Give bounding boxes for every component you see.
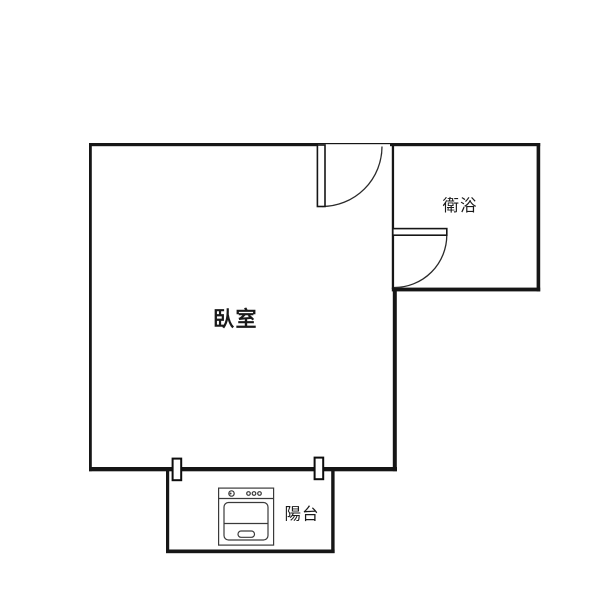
balcony-door-post-right	[315, 458, 324, 480]
bathroom-door-leaf	[393, 229, 447, 236]
floor-plan: 臥室 衛浴 陽台	[0, 0, 600, 600]
wall-bottom-bedroom	[89, 467, 397, 471]
doorway-lintel	[318, 143, 391, 144]
floor-plan-drawing: 臥室 衛浴 陽台	[0, 0, 600, 600]
washing-machine-icon	[219, 488, 274, 545]
washing-machine-body	[219, 488, 274, 545]
wall-balcony-right	[331, 471, 334, 553]
bathroom-area	[394, 146, 537, 288]
wall-left	[89, 143, 92, 471]
balcony-label: 陽台	[285, 505, 320, 524]
bedroom-entry-door-leaf	[317, 145, 325, 207]
wall-top-left	[89, 143, 318, 146]
wall-right-lower	[393, 287, 397, 471]
bathroom-label: 衛浴	[443, 196, 478, 215]
bedroom-label: 臥室	[213, 307, 258, 331]
bedroom-area	[91, 146, 392, 467]
wall-balcony-left	[166, 471, 169, 553]
wall-bathroom-right	[537, 143, 541, 291]
wall-balcony-bottom	[166, 550, 335, 554]
wall-top-right	[390, 143, 540, 146]
wall-divider-bathroom	[392, 143, 394, 289]
balcony-door-post-left	[173, 459, 182, 481]
wall-bathroom-bottom	[392, 288, 540, 292]
washing-machine-knob-dot	[230, 493, 232, 495]
